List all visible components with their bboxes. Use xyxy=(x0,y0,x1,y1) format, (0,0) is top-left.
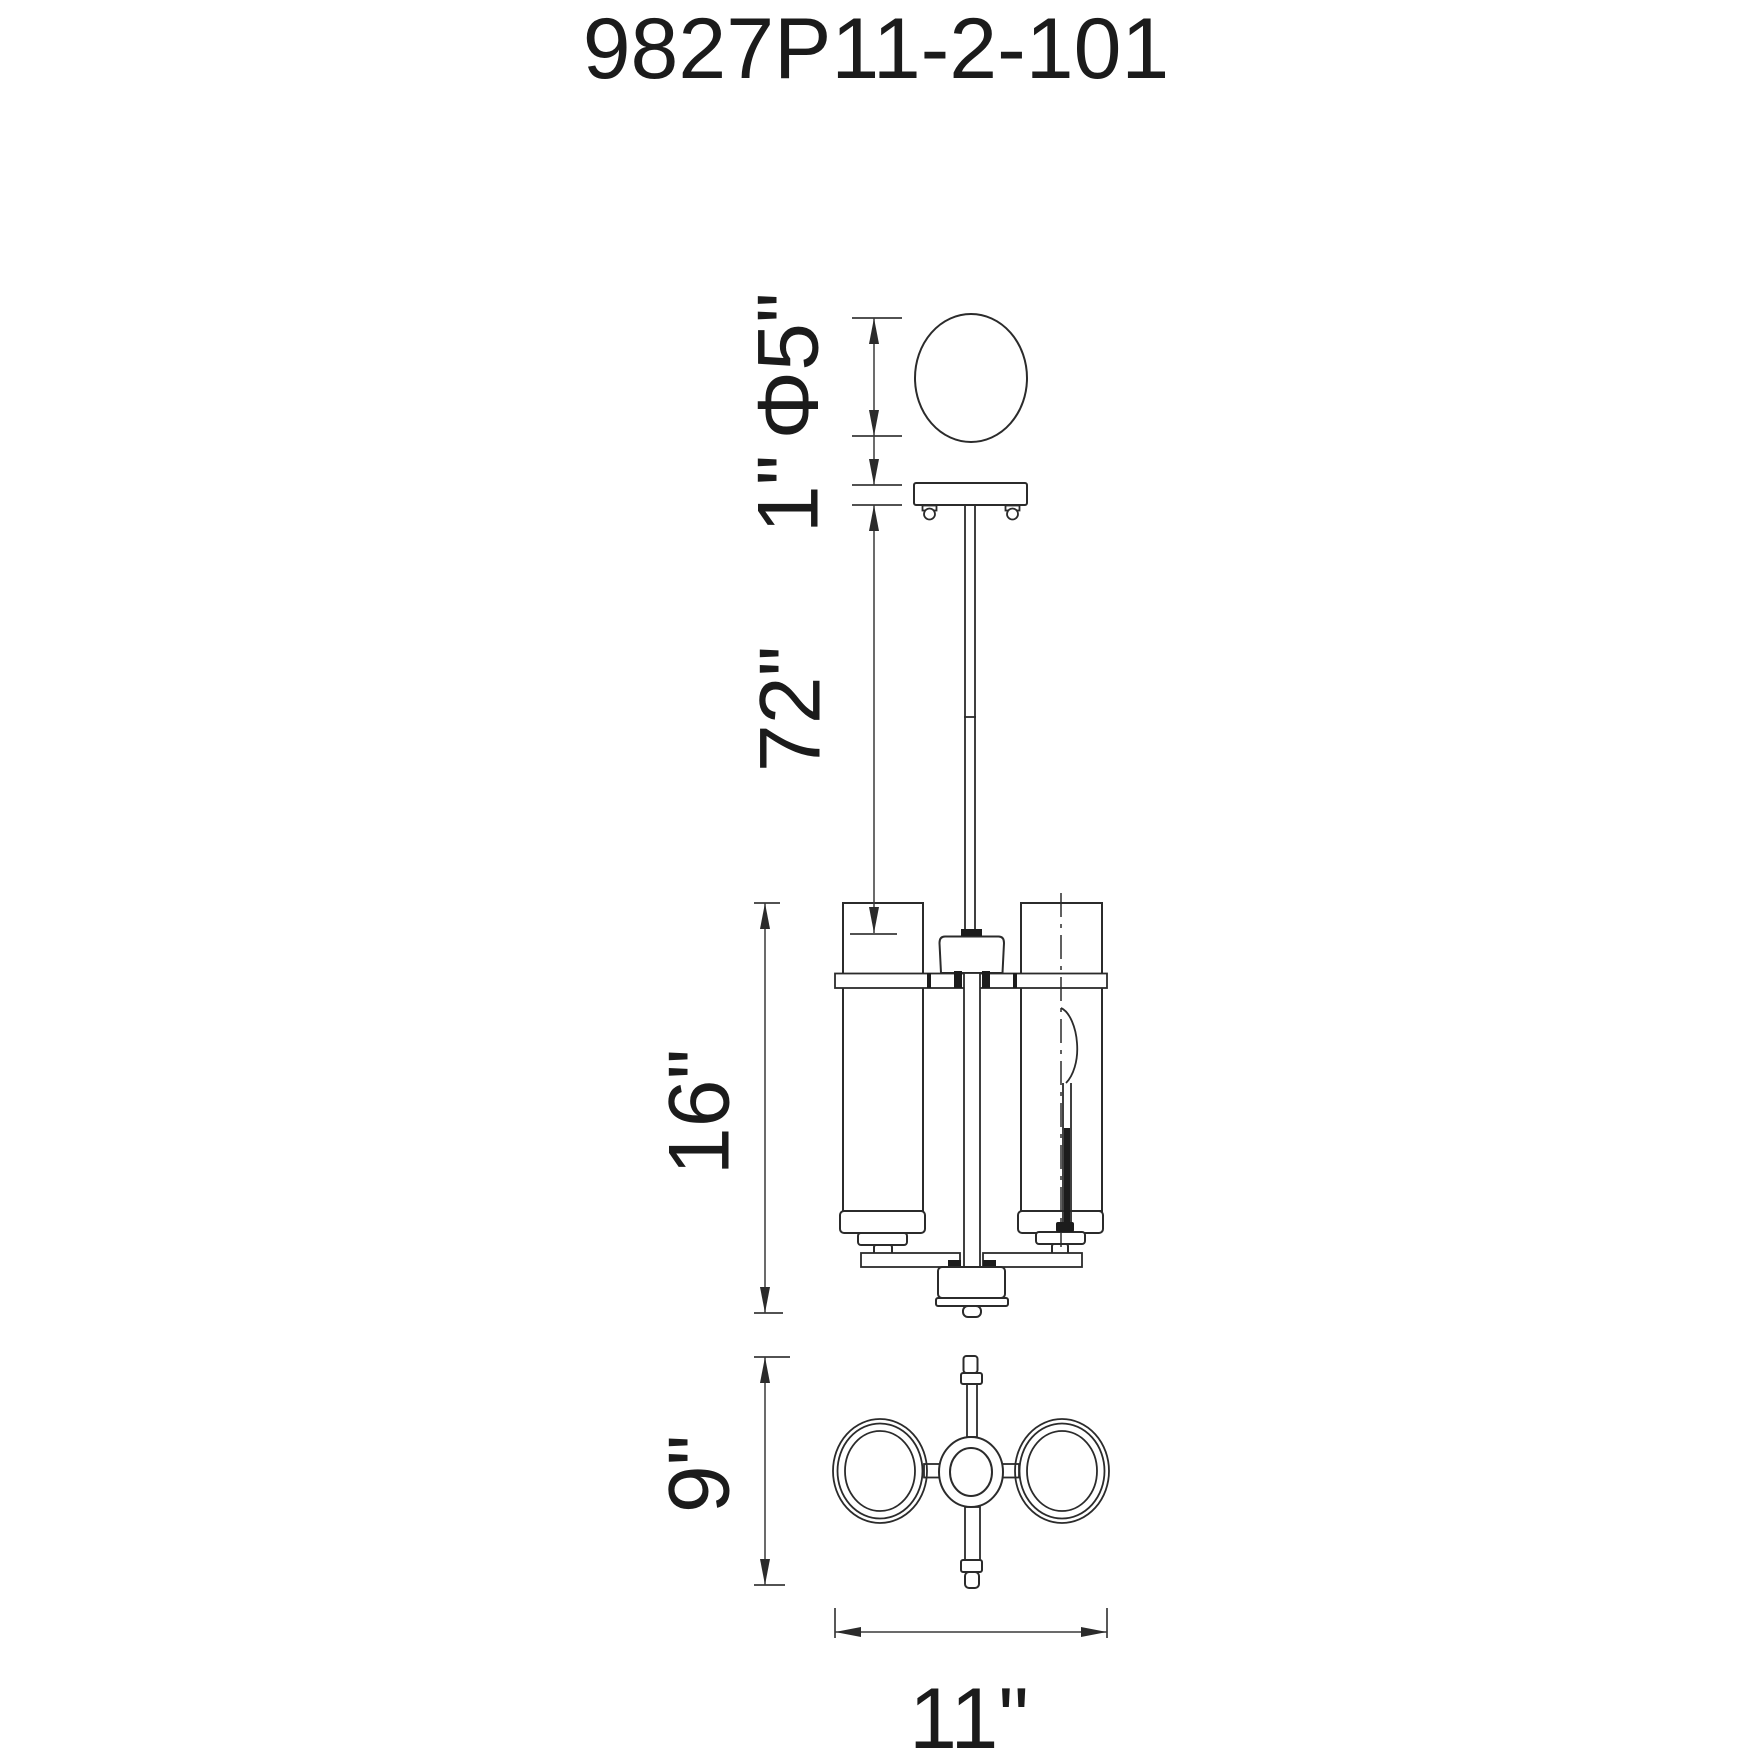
dim-fixture-height: 16" xyxy=(651,903,783,1313)
plan-bar-collar-top xyxy=(961,1373,982,1384)
bottom-hub-plate xyxy=(936,1298,1008,1306)
dim-label-canopy-height: 1" xyxy=(740,455,836,533)
plan-arm-right xyxy=(1002,1464,1019,1478)
canopy-side-view xyxy=(914,483,1027,505)
top-hub xyxy=(940,937,1005,974)
dim-canopy-diameter: Φ5" xyxy=(740,293,902,440)
shade-ring-left xyxy=(833,1419,927,1523)
technical-drawing: 9827P11-2-101 xyxy=(0,0,1756,1756)
drawing-title: 9827P11-2-101 xyxy=(583,1,1170,97)
canopy-screw-left xyxy=(923,506,937,520)
candle-wick-shadow xyxy=(1064,1128,1070,1228)
canopy-top-view-circle xyxy=(915,314,1027,442)
plan-bar-lower xyxy=(965,1507,980,1560)
shade-ring-right xyxy=(1015,1419,1109,1523)
dim-fixture-width: 11" xyxy=(835,1608,1107,1756)
dim-label-rod-drop: 72" xyxy=(742,646,838,772)
dim-rod-drop: 72" xyxy=(742,505,897,934)
bar-stem-joint-left xyxy=(954,971,962,988)
dim-label-fixture-width: 11" xyxy=(909,1671,1029,1756)
candle-base-mark xyxy=(1056,1222,1074,1232)
finial xyxy=(963,1306,981,1317)
canopy-screw-right xyxy=(1006,506,1020,520)
bottom-hub xyxy=(938,1267,1005,1298)
glass-shade-left xyxy=(843,903,923,1211)
dim-label-fixture-height: 16" xyxy=(651,1049,747,1175)
plan-bar-upper xyxy=(967,1384,977,1437)
shade-cap-left xyxy=(840,1211,925,1233)
bar-stem-joint-right xyxy=(982,971,990,988)
dim-fixture-depth: 9" xyxy=(651,1357,790,1585)
drawing-sheet: 9827P11-2-101 xyxy=(0,0,1756,1756)
bottom-plan-view xyxy=(833,1356,1109,1588)
dim-label-canopy-diameter: Φ5" xyxy=(740,293,836,440)
rod-hub-weld-mark xyxy=(961,929,982,936)
plan-bar-collar-bottom xyxy=(961,1560,982,1572)
center-stem-lower xyxy=(964,973,980,1267)
lower-arm-right xyxy=(983,1253,1082,1267)
dim-label-fixture-depth: 9" xyxy=(651,1435,747,1513)
lower-arm-left xyxy=(861,1253,960,1267)
hang-rod-upper xyxy=(965,504,975,938)
plan-bar-tip-bottom xyxy=(965,1572,979,1588)
socket-left xyxy=(858,1233,907,1245)
plan-bar-tip-top xyxy=(964,1356,978,1373)
dim-canopy-height: 1" xyxy=(740,436,902,533)
